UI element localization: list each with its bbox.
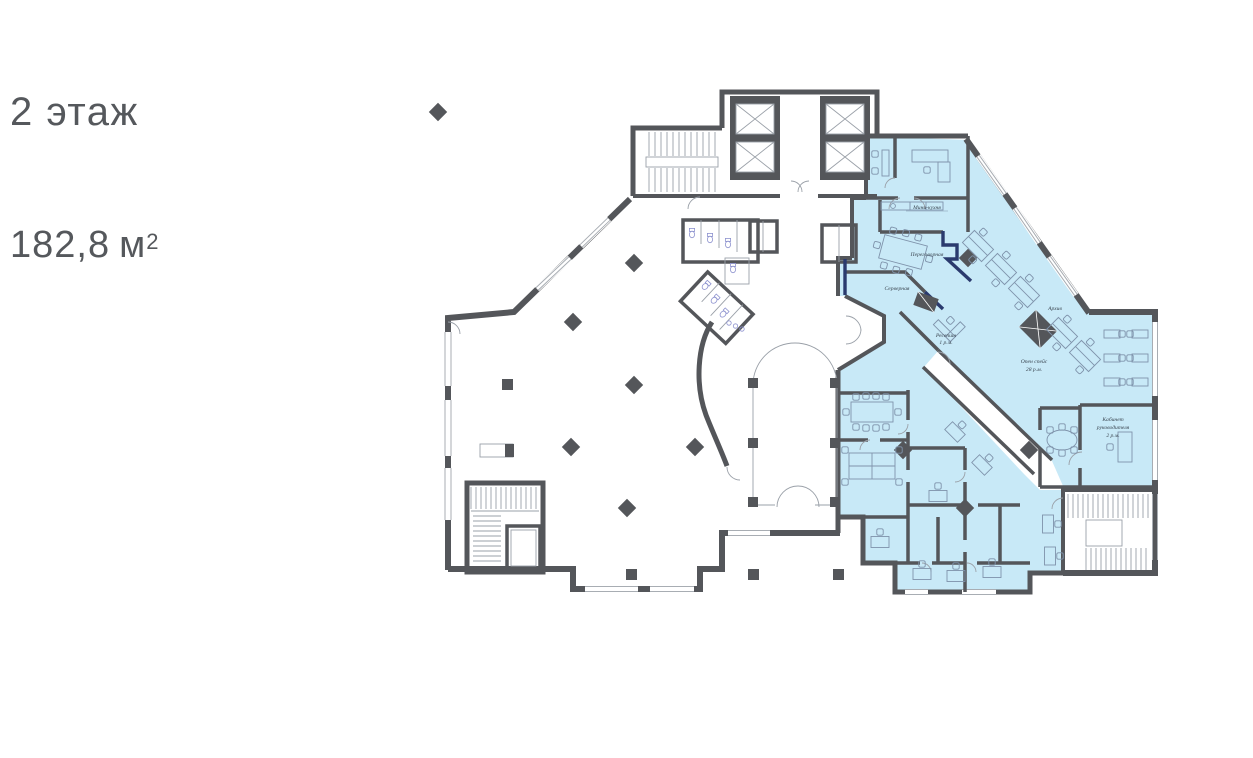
stairwell-bottom-right (1063, 490, 1155, 573)
arch-niche (777, 486, 819, 507)
label-director-capacity: 2 р.м. (1106, 433, 1119, 439)
curved-wall (699, 322, 727, 466)
toilet-diagonal-block (680, 272, 753, 344)
label-director-2: руководителя (1096, 424, 1130, 431)
atrium-void (699, 322, 840, 507)
elevator-core (730, 96, 870, 180)
leased-area (838, 136, 1155, 592)
floor-plan-drawing: Мини-кухня Переговорная Серверная Ресепш… (0, 0, 1253, 758)
stairwell-bottom-left (467, 483, 543, 572)
label-reception-capacity: 1 р.м. (939, 340, 952, 346)
stairwell-top (646, 132, 718, 192)
label-open-space: Опен спейс (1021, 358, 1048, 365)
label-mini-kitchen: Мини-кухня (912, 205, 941, 211)
toilets (680, 220, 856, 343)
label-director-1: Кабинет (1101, 416, 1123, 423)
label-archive: Архив (1047, 306, 1062, 312)
lobby-desk (480, 444, 514, 457)
label-server-room: Серверная (885, 286, 910, 292)
floor-plan-page: 2 этаж 182,8м2 (0, 0, 1253, 758)
label-meeting-room: Переговорная (910, 252, 944, 258)
label-reception: Ресепшн (935, 333, 957, 339)
label-open-space-capacity: 28 р.м. (1026, 367, 1042, 373)
